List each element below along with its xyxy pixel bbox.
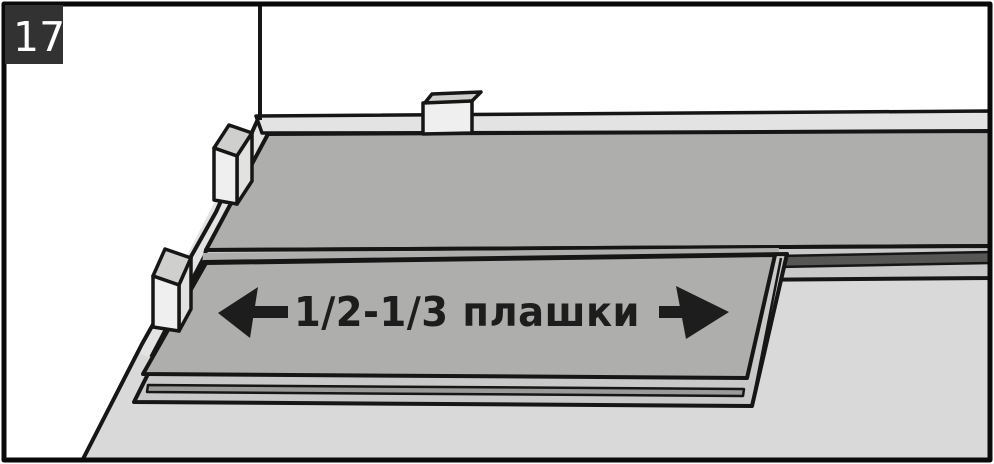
illustration-canvas: 1/2-1/3 плашки 17: [0, 0, 994, 464]
plank-row-1-edge-groove: [777, 252, 990, 267]
step-number-badge: 17: [5, 5, 65, 64]
spacer-a-front-face: [214, 148, 237, 204]
spacer-wedge-left-upper: [214, 125, 252, 204]
measure-label: 1/2-1/3 плашки: [294, 288, 640, 336]
spacer-wedge-back: [423, 92, 481, 134]
step-number: 17: [13, 13, 65, 61]
spacer-c-front-face: [423, 101, 472, 134]
spacer-wedge-left-lower: [153, 249, 191, 331]
plank-row-1-surface: [206, 131, 990, 250]
spacer-b-front-face: [153, 276, 179, 331]
manual-illustration-step: 1/2-1/3 плашки 17: [0, 0, 994, 464]
